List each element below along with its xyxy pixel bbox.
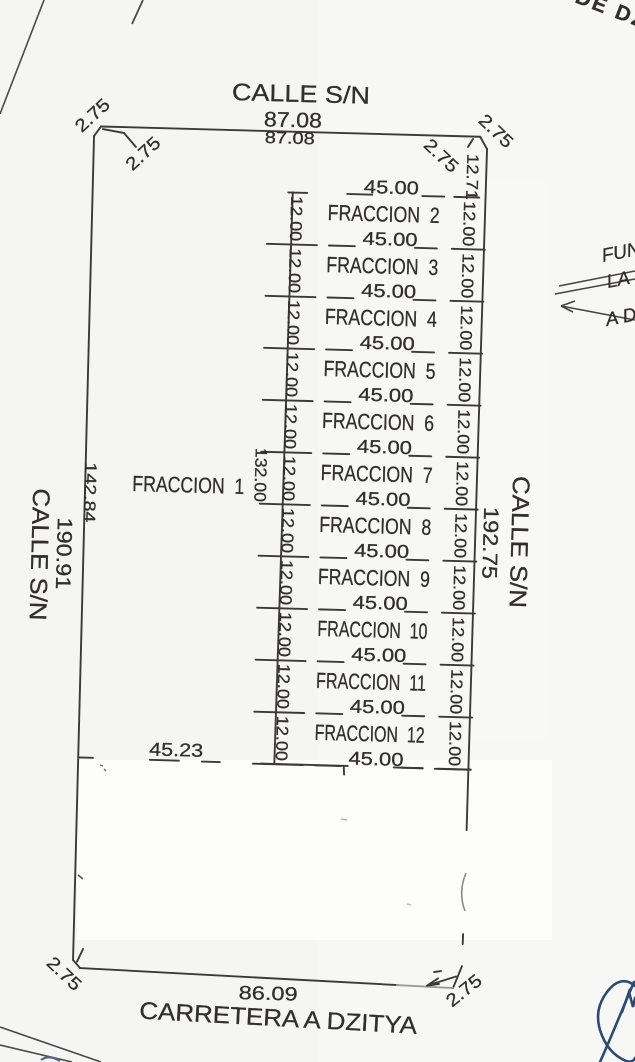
svg-text:12.00: 12.00	[273, 664, 292, 709]
svg-text:45.00: 45.00	[358, 384, 414, 406]
svg-text:FRACCION 8: FRACCION 8	[319, 512, 432, 540]
svg-text:192.75: 192.75	[477, 507, 502, 580]
svg-text:12.00: 12.00	[280, 404, 299, 449]
svg-text:190.91: 190.91	[51, 517, 76, 590]
svg-text:12.00: 12.00	[283, 300, 302, 345]
svg-text:FRACCION 3: FRACCION 3	[326, 252, 439, 280]
svg-text:FRACCION 1: FRACCION 1	[132, 471, 245, 499]
svg-text:12.00: 12.00	[449, 565, 468, 610]
svg-text:45.00: 45.00	[355, 488, 411, 510]
svg-text:12.00: 12.00	[446, 669, 465, 714]
svg-text:FRACCION 2: FRACCION 2	[327, 200, 440, 228]
svg-text:45.23: 45.23	[149, 738, 204, 760]
svg-text:12.00: 12.00	[459, 201, 478, 246]
svg-text:12.00: 12.00	[278, 508, 297, 553]
svg-text:FRACCION 4: FRACCION 4	[325, 304, 438, 332]
svg-text:132.00: 132.00	[250, 448, 269, 502]
svg-text:12.00: 12.00	[453, 409, 472, 454]
svg-text:45.00: 45.00	[362, 228, 418, 250]
svg-text:45.00: 45.00	[364, 176, 420, 198]
svg-text:12.00: 12.00	[450, 513, 469, 558]
svg-text:FRACCION 5: FRACCION 5	[323, 356, 436, 384]
svg-text:45.00: 45.00	[354, 540, 410, 562]
svg-text:CALLE S/N: CALLE S/N	[24, 488, 55, 621]
svg-text:12.00: 12.00	[455, 357, 474, 402]
svg-text:12.00: 12.00	[275, 612, 294, 657]
svg-text:12.00: 12.00	[276, 560, 295, 605]
svg-text:FRACCION 10: FRACCION 10	[317, 616, 428, 644]
svg-text:45.00: 45.00	[351, 643, 407, 665]
svg-text:45.00: 45.00	[350, 695, 406, 717]
svg-text:142.84: 142.84	[80, 462, 100, 522]
svg-text:45.00: 45.00	[357, 436, 413, 458]
svg-text:45.00: 45.00	[359, 332, 415, 354]
svg-text:FRACCION 9: FRACCION 9	[318, 564, 431, 592]
svg-text:12.00: 12.00	[285, 248, 304, 293]
svg-text:12.00: 12.00	[272, 716, 291, 761]
svg-text:12.00: 12.00	[282, 352, 301, 397]
svg-text:12.00: 12.00	[445, 721, 464, 766]
svg-text:CALLE S/N: CALLE S/N	[504, 476, 535, 609]
svg-text:FRACCION 11: FRACCION 11	[316, 668, 427, 696]
svg-text:12.00: 12.00	[286, 196, 305, 241]
svg-text:FRACCION 6: FRACCION 6	[322, 408, 435, 436]
svg-text:CALLE S/N: CALLE S/N	[232, 79, 371, 110]
svg-text:12.00: 12.00	[279, 456, 298, 501]
svg-text:45.00: 45.00	[361, 280, 417, 302]
svg-text:12.00: 12.00	[452, 461, 471, 506]
svg-text:12.00: 12.00	[448, 617, 467, 662]
svg-text:FRACCION 12: FRACCION 12	[314, 720, 425, 748]
svg-text:86.09: 86.09	[238, 983, 298, 1006]
svg-text:LA: LA	[605, 268, 632, 293]
svg-text:45.00: 45.00	[348, 747, 404, 769]
svg-text:FRACCION 7: FRACCION 7	[320, 460, 433, 488]
svg-text:45.00: 45.00	[352, 591, 408, 613]
svg-text:12.00: 12.00	[456, 305, 475, 350]
svg-text:12.00: 12.00	[457, 253, 476, 298]
svg-text:87.08: 87.08	[265, 129, 315, 148]
svg-text:12.71: 12.71	[462, 154, 481, 200]
